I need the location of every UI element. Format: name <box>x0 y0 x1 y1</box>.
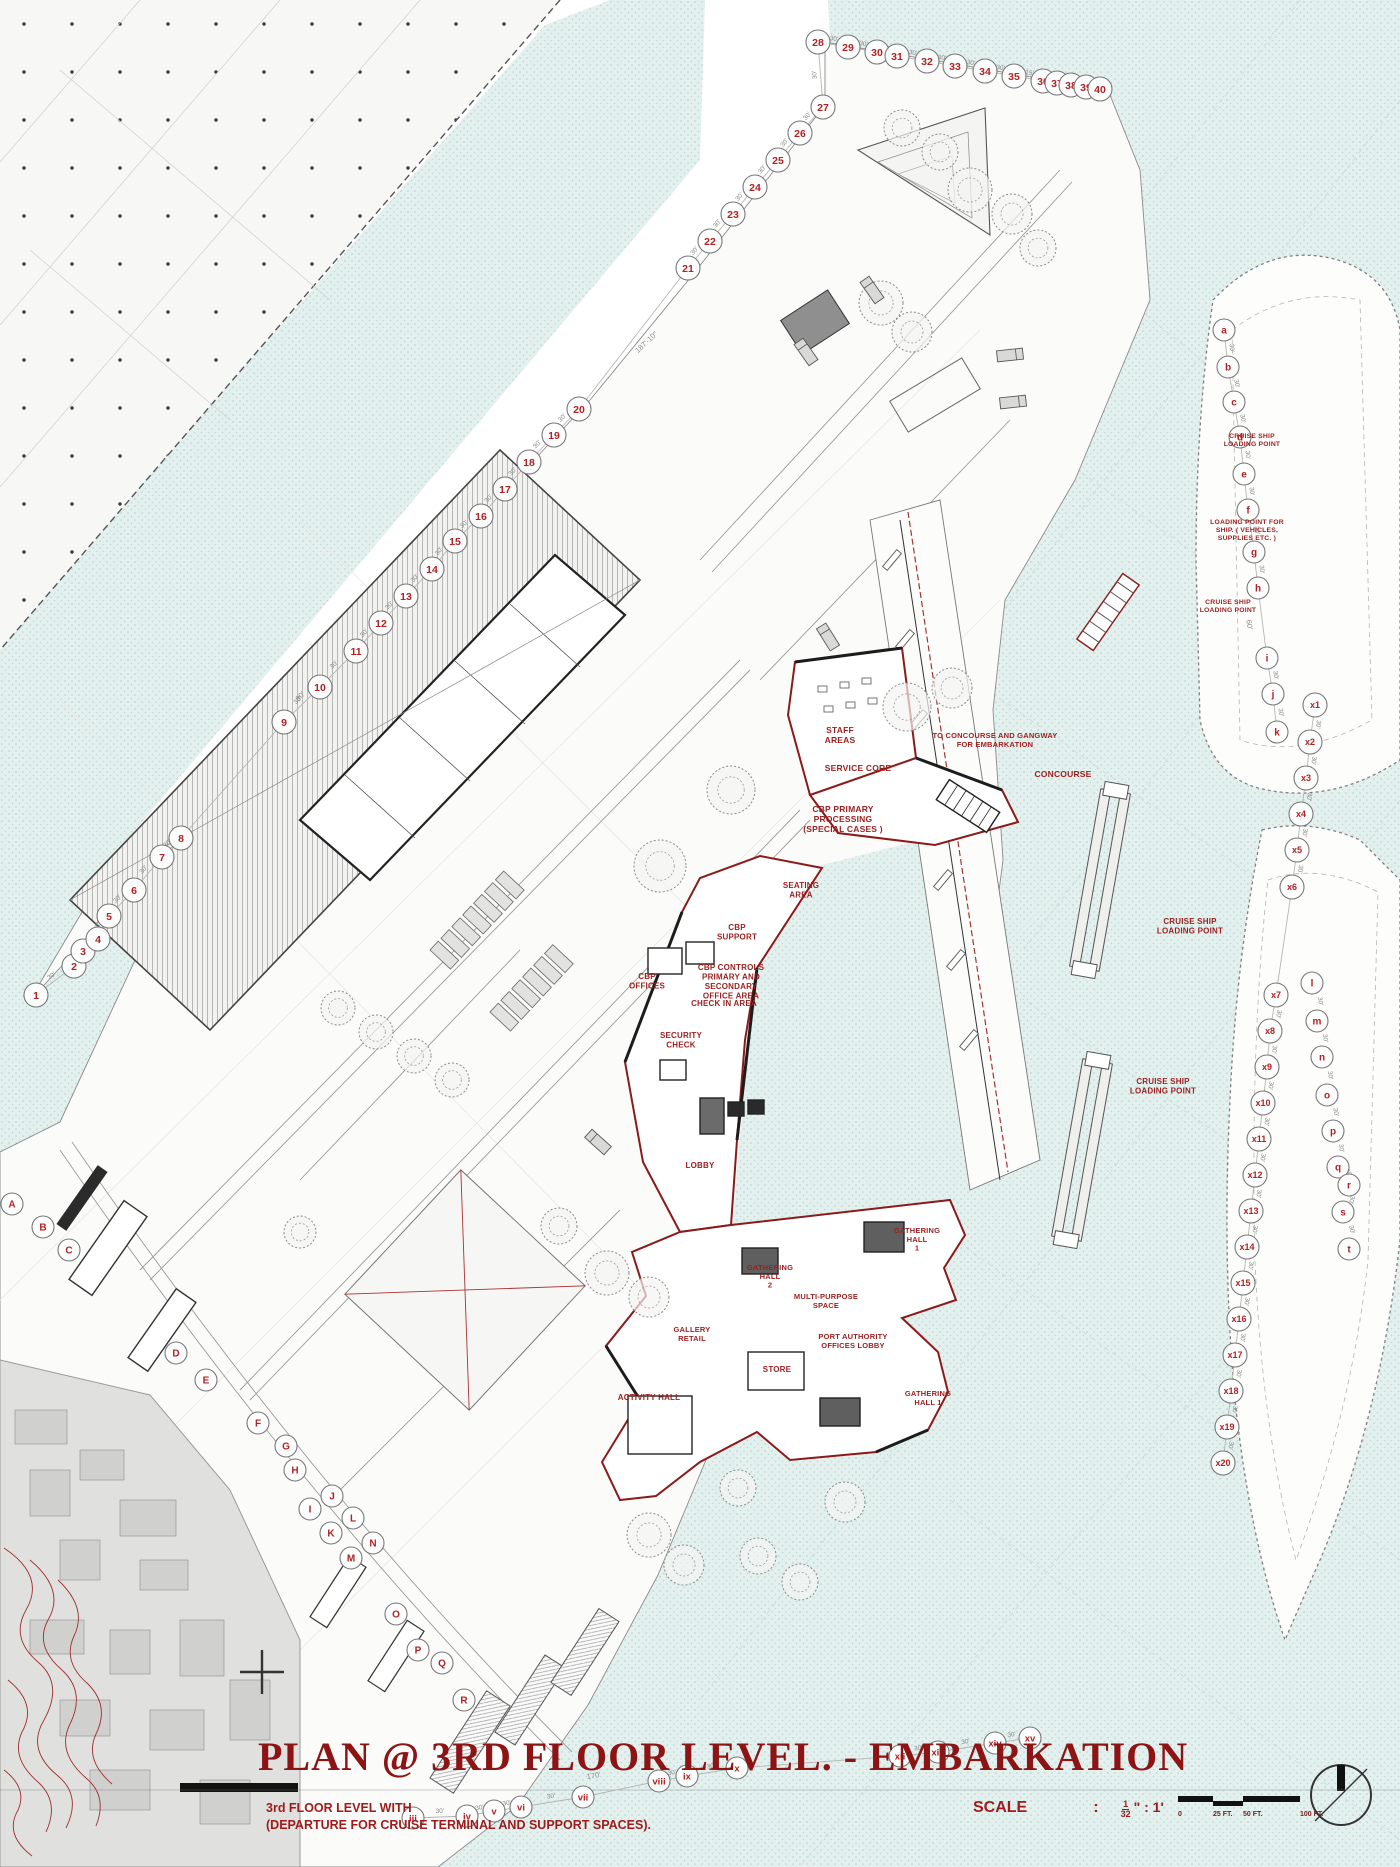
tree-icon <box>321 991 355 1025</box>
tree-icon <box>825 1482 865 1522</box>
tree-icon <box>782 1564 818 1600</box>
svg-text:c: c <box>1231 398 1237 409</box>
grid-dimension: 30' <box>1243 1297 1251 1306</box>
svg-text:28: 28 <box>812 37 824 49</box>
grid-dimension: 30' <box>1251 1225 1259 1234</box>
grid-dimension: 30' <box>1271 670 1279 680</box>
grid-marker-1: 1 <box>24 983 48 1007</box>
grid-marker-x9: x9 <box>1255 1055 1279 1079</box>
svg-text:x1: x1 <box>1310 700 1320 710</box>
svg-text:15: 15 <box>449 536 461 548</box>
svg-text:1: 1 <box>33 990 39 1002</box>
svg-text:R: R <box>460 1696 468 1707</box>
plan-label-staff: STAFFAREAS <box>825 725 856 745</box>
tree-icon <box>883 683 931 731</box>
svg-text:M: M <box>347 1554 355 1565</box>
svg-text:x20: x20 <box>1215 1458 1230 1468</box>
grid-marker-21: 21 <box>676 256 700 280</box>
svg-text:r: r <box>1347 1181 1351 1192</box>
svg-text:29: 29 <box>842 42 854 54</box>
scale-tick-label: 25 FT. <box>1213 1811 1233 1818</box>
grid-marker-x6: x6 <box>1280 875 1304 899</box>
plan-label-lobby: LOBBY <box>686 1161 715 1170</box>
legend-bar <box>180 1783 298 1792</box>
grid-marker-P: P <box>407 1639 429 1661</box>
svg-text:x15: x15 <box>1235 1278 1250 1288</box>
grid-marker-k: k <box>1266 721 1288 743</box>
grid-marker-24: 24 <box>743 175 767 199</box>
grid-marker-x17: x17 <box>1223 1343 1247 1367</box>
plan-label-cruise-ship: CRUISE SHIPLOADING POINT <box>1130 1077 1196 1095</box>
svg-text:O: O <box>392 1610 400 1621</box>
svg-text:x19: x19 <box>1219 1422 1234 1432</box>
tree-icon <box>884 110 920 146</box>
grid-marker-s: s <box>1332 1201 1354 1223</box>
svg-text:20: 20 <box>573 404 585 416</box>
svg-text:i: i <box>1266 654 1269 665</box>
svg-text:24: 24 <box>749 182 761 194</box>
grid-marker-13: 13 <box>394 584 418 608</box>
grid-marker-x2: x2 <box>1298 730 1322 754</box>
grid-marker-x20: x20 <box>1211 1451 1235 1475</box>
grid-dimension: 30' <box>1305 792 1313 801</box>
grid-marker-x18: x18 <box>1219 1379 1243 1403</box>
plan-label-cruise-ship: CRUISE SHIPLOADING POINT <box>1157 917 1223 935</box>
svg-text:x7: x7 <box>1271 990 1281 1000</box>
grid-marker-f: f <box>1237 499 1259 521</box>
svg-text:26: 26 <box>794 128 806 140</box>
grid-dimension: 30' <box>1321 1034 1329 1043</box>
svg-text:C: C <box>65 1246 72 1257</box>
svg-text:g: g <box>1251 548 1257 559</box>
svg-text:K: K <box>327 1529 335 1540</box>
truck-icon <box>999 395 1026 409</box>
svg-text:8: 8 <box>178 833 184 845</box>
grid-dimension: 30' <box>1248 487 1256 496</box>
grid-marker-p: p <box>1322 1120 1344 1142</box>
grid-marker-8: 8 <box>169 826 193 850</box>
grid-marker-e: e <box>1233 463 1255 485</box>
grid-dimension: 30' <box>1238 414 1246 424</box>
grid-dimension: 30' <box>1247 1261 1255 1270</box>
grid-marker-a: a <box>1213 319 1235 341</box>
svg-text:18: 18 <box>523 457 535 469</box>
svg-text:F: F <box>255 1419 261 1430</box>
grid-marker-L: L <box>342 1507 364 1529</box>
grid-marker-x16: x16 <box>1227 1307 1251 1331</box>
svg-text:x10: x10 <box>1255 1098 1270 1108</box>
grid-dimension: 30' <box>1274 1009 1282 1019</box>
tree-icon <box>435 1063 469 1097</box>
dimension-label: 60' <box>1244 619 1254 630</box>
grid-marker-16: 16 <box>469 504 493 528</box>
svg-text:h: h <box>1255 584 1261 595</box>
grid-marker-25: 25 <box>766 148 790 172</box>
grid-marker-j: j <box>1262 683 1284 705</box>
grid-marker-x19: x19 <box>1215 1415 1239 1439</box>
grid-marker-g: g <box>1243 541 1265 563</box>
grid-dimension: 30' <box>1331 1107 1339 1117</box>
tree-icon <box>1020 230 1056 266</box>
grid-marker-F: F <box>247 1412 269 1434</box>
svg-text:J: J <box>329 1492 335 1503</box>
grid-marker-10: 10 <box>308 675 332 699</box>
grid-marker-A: A <box>1 1193 23 1215</box>
grid-marker-32: 32 <box>915 49 939 73</box>
grid-marker-22: 22 <box>698 229 722 253</box>
svg-text:x12: x12 <box>1247 1170 1262 1180</box>
svg-text:x8: x8 <box>1265 1026 1275 1036</box>
svg-text:13: 13 <box>400 591 412 603</box>
grid-marker-18: 18 <box>517 450 541 474</box>
grid-marker-m: m <box>1306 1010 1328 1032</box>
grid-dimension: 30' <box>1314 720 1322 729</box>
plan-label-cbp-controls: CBP CONTROLSPRIMARY ANDSECONDARYOFFICE A… <box>698 963 765 1000</box>
plan-label-store: STORE <box>763 1365 792 1374</box>
svg-text:31: 31 <box>891 51 903 63</box>
svg-text:6: 6 <box>131 885 137 897</box>
grid-marker-x12: x12 <box>1243 1163 1267 1187</box>
scale-colon: : <box>1093 1799 1098 1817</box>
svg-text:x17: x17 <box>1227 1350 1242 1360</box>
svg-text:2: 2 <box>71 961 77 973</box>
grid-dimension: 30' <box>1277 708 1285 717</box>
svg-text:q: q <box>1335 1163 1341 1174</box>
svg-text:x3: x3 <box>1301 773 1311 783</box>
svg-text:10: 10 <box>314 682 326 694</box>
svg-text:11: 11 <box>350 646 361 658</box>
tree-icon <box>932 668 972 708</box>
grid-marker-E: E <box>195 1369 217 1391</box>
grid-marker-x5: x5 <box>1285 838 1309 862</box>
grid-dimension: 30' <box>1258 565 1266 574</box>
grid-dimension: 30' <box>1301 828 1309 837</box>
grid-dimension: 30' <box>1326 1071 1334 1080</box>
grid-marker-Q: Q <box>431 1652 453 1674</box>
svg-text:33: 33 <box>949 61 961 73</box>
tree-icon <box>720 1470 756 1506</box>
svg-text:4: 4 <box>95 934 101 946</box>
grid-marker-H: H <box>284 1459 306 1481</box>
svg-text:9: 9 <box>281 717 287 729</box>
grid-marker-x10: x10 <box>1251 1091 1275 1115</box>
svg-text:32: 32 <box>921 56 933 68</box>
svg-text:x4: x4 <box>1296 809 1306 819</box>
svg-text:16: 16 <box>475 511 487 523</box>
svg-text:22: 22 <box>704 236 716 248</box>
plan-subtitle: 3rd FLOOR LEVEL WITH (DEPARTURE FOR CRUI… <box>266 1800 651 1834</box>
svg-text:x9: x9 <box>1262 1062 1272 1072</box>
tree-icon <box>707 766 755 814</box>
plan-label-cbp-primary: CBP PRIMARYPROCESSING(SPECIAL CASES ) <box>803 804 883 834</box>
plan-label-activity-hall: ACTIVITY HALL <box>618 1393 680 1402</box>
svg-text:A: A <box>8 1200 15 1211</box>
svg-text:x14: x14 <box>1239 1242 1254 1252</box>
grid-marker-l: l <box>1301 972 1323 994</box>
svg-text:j: j <box>1271 690 1275 701</box>
plan-label-port-authority: PORT AUTHORITYOFFICES LOBBY <box>818 1332 887 1350</box>
grid-marker-x7: x7 <box>1264 983 1288 1007</box>
grid-marker-28: 28 <box>806 30 830 54</box>
svg-text:D: D <box>172 1349 179 1360</box>
grid-marker-5: 5 <box>97 904 121 928</box>
tree-icon <box>634 840 686 892</box>
tree-icon <box>992 194 1032 234</box>
grid-marker-27: 27 <box>811 95 835 119</box>
grid-marker-20: 20 <box>567 397 591 421</box>
svg-text:m: m <box>1313 1017 1322 1028</box>
tree-icon <box>627 1513 671 1557</box>
svg-text:x11: x11 <box>1252 1134 1267 1144</box>
svg-text:x16: x16 <box>1231 1314 1246 1324</box>
grid-dimension: 30' <box>1244 450 1252 459</box>
plan-label-service-core: SERVICE CORE <box>825 763 892 773</box>
grid-dimension: 30' <box>1227 1441 1235 1450</box>
svg-text:p: p <box>1330 1127 1336 1138</box>
svg-text:19: 19 <box>548 430 560 442</box>
grid-marker-b: b <box>1217 356 1239 378</box>
grid-marker-x8: x8 <box>1258 1019 1282 1043</box>
svg-text:21: 21 <box>682 263 694 275</box>
grid-marker-34: 34 <box>973 59 997 83</box>
grid-dimension: 30' <box>1259 1153 1267 1162</box>
svg-text:E: E <box>203 1376 210 1387</box>
scale-tick-label: 0 <box>1178 1811 1182 1818</box>
scale-suffix: " : 1' <box>1134 1799 1164 1815</box>
subtitle-line-1: 3rd FLOOR LEVEL WITH <box>266 1800 651 1817</box>
grid-marker-o: o <box>1316 1084 1338 1106</box>
grid-marker-x11: x11 <box>1247 1127 1271 1151</box>
svg-text:12: 12 <box>375 618 387 630</box>
scale-label: SCALE <box>973 1799 1027 1817</box>
grid-marker-C: C <box>58 1239 80 1261</box>
grid-marker-7: 7 <box>150 845 174 869</box>
grid-dimension: 30' <box>1255 1189 1263 1198</box>
grid-marker-14: 14 <box>420 557 444 581</box>
grid-marker-40: 40 <box>1088 77 1112 101</box>
svg-text:I: I <box>309 1505 312 1516</box>
grid-dimension: 30' <box>1270 1045 1278 1054</box>
plan-label-check-in-area: CHECK IN AREA <box>691 999 757 1008</box>
grid-marker-n: n <box>1311 1046 1333 1068</box>
svg-text:7: 7 <box>159 852 165 864</box>
subtitle-line-2: (DEPARTURE FOR CRUISE TERMINAL AND SUPPO… <box>266 1817 651 1834</box>
tree-icon <box>397 1039 431 1073</box>
grid-marker-x15: x15 <box>1231 1271 1255 1295</box>
grid-marker-19: 19 <box>542 423 566 447</box>
site-plan-drawing: 30'30'30'30'30'30'30'30'30'30'30'30'30'3… <box>0 0 1400 1867</box>
plan-label-cruise-ship: CRUISE SHIPLOADING POINT <box>1200 599 1257 614</box>
grid-marker-c: c <box>1223 391 1245 413</box>
svg-text:30: 30 <box>871 47 883 59</box>
grid-marker-17: 17 <box>493 477 517 501</box>
tree-icon <box>585 1251 629 1295</box>
scale-note: SCALE : 1 32 " : 1' <box>973 1799 1164 1820</box>
svg-text:35: 35 <box>1008 71 1020 83</box>
grid-dimension: 30' <box>1228 343 1236 352</box>
svg-text:e: e <box>1241 470 1247 481</box>
grid-marker-33: 33 <box>943 54 967 78</box>
tree-icon <box>740 1538 776 1574</box>
tree-icon <box>629 1277 669 1317</box>
svg-text:x6: x6 <box>1287 882 1297 892</box>
grid-marker-G: G <box>275 1435 297 1457</box>
grid-marker-26: 26 <box>788 121 812 145</box>
tree-icon <box>359 1015 393 1049</box>
truck-icon <box>996 348 1023 362</box>
grid-marker-4: 4 <box>86 927 110 951</box>
grid-marker-M: M <box>340 1547 362 1569</box>
grid-dimension: 30' <box>811 70 819 79</box>
tree-icon <box>892 312 932 352</box>
drawing-sheet: 30'30'30'30'30'30'30'30'30'30'30'30'30'3… <box>0 0 1400 1867</box>
svg-text:b: b <box>1225 363 1231 374</box>
svg-text:P: P <box>415 1646 422 1657</box>
grid-dimension: 30' <box>1239 1333 1247 1342</box>
svg-text:x13: x13 <box>1243 1206 1258 1216</box>
grid-marker-h: h <box>1247 577 1269 599</box>
svg-text:x18: x18 <box>1223 1386 1238 1396</box>
scale-tick-label: 50 FT. <box>1243 1811 1263 1818</box>
scale-tick-label: 100 FT. <box>1300 1811 1323 1818</box>
grid-marker-x13: x13 <box>1239 1199 1263 1223</box>
grid-marker-J: J <box>321 1485 343 1507</box>
svg-text:l: l <box>1311 979 1314 990</box>
svg-text:27: 27 <box>817 102 829 114</box>
grid-dimension: 30' <box>1235 1369 1243 1378</box>
grid-marker-x3: x3 <box>1294 766 1318 790</box>
grid-dimension: 30' <box>1310 756 1318 765</box>
grid-marker-x1: x1 <box>1303 693 1327 717</box>
grid-marker-9: 9 <box>272 710 296 734</box>
grid-dimension: 30' <box>1296 865 1304 874</box>
plan-label-cruise-ship: CRUISE SHIPLOADING POINT <box>1224 433 1281 448</box>
grid-marker-I: I <box>299 1498 321 1520</box>
svg-text:34: 34 <box>979 66 991 78</box>
grid-marker-15: 15 <box>443 529 467 553</box>
svg-text:o: o <box>1324 1091 1330 1102</box>
svg-text:14: 14 <box>426 564 438 576</box>
grid-dimension: 30' <box>1232 379 1240 389</box>
tree-icon <box>922 134 958 170</box>
grid-marker-N: N <box>362 1532 384 1554</box>
grid-marker-6: 6 <box>122 878 146 902</box>
page-title: PLAN @ 3RD FLOOR LEVEL. - EMBARKATION <box>258 1733 1188 1780</box>
svg-text:N: N <box>369 1539 376 1550</box>
svg-text:3: 3 <box>80 946 86 958</box>
grid-marker-K: K <box>320 1522 342 1544</box>
svg-text:17: 17 <box>499 484 511 496</box>
grid-marker-B: B <box>32 1216 54 1238</box>
svg-text:a: a <box>1221 326 1227 337</box>
grid-marker-x14: x14 <box>1235 1235 1259 1259</box>
tree-icon <box>948 168 992 212</box>
plan-label-concourse: CONCOURSE <box>1034 769 1091 779</box>
svg-text:H: H <box>291 1466 298 1477</box>
svg-text:5: 5 <box>106 911 112 923</box>
svg-text:Q: Q <box>438 1659 446 1670</box>
tree-icon <box>541 1208 577 1244</box>
grid-dimension: 30' <box>1337 1144 1345 1153</box>
svg-text:G: G <box>282 1442 290 1453</box>
grid-marker-D: D <box>165 1342 187 1364</box>
grid-marker-35: 35 <box>1002 64 1026 88</box>
tree-icon <box>284 1216 316 1248</box>
grid-dimension: 30' <box>1347 1225 1355 1234</box>
grid-marker-x4: x4 <box>1289 802 1313 826</box>
tree-icon <box>664 1545 704 1585</box>
grid-marker-R: R <box>453 1689 475 1711</box>
grid-marker-i: i <box>1256 647 1278 669</box>
svg-text:23: 23 <box>727 209 739 221</box>
grid-dimension: 30' <box>1267 1081 1275 1090</box>
svg-text:x2: x2 <box>1305 737 1315 747</box>
plan-label-gallery: GALLERYRETAIL <box>674 1325 711 1343</box>
plan-label-loading-point-for: LOADING POINT FORSHIP. ( VEHICLES,SUPPLI… <box>1210 519 1284 542</box>
grid-marker-O: O <box>385 1603 407 1625</box>
scale-fraction: 1 32 <box>1121 1800 1131 1820</box>
svg-text:x5: x5 <box>1292 845 1302 855</box>
grid-marker-11: 11 <box>344 639 368 663</box>
grid-marker-r: r <box>1338 1174 1360 1196</box>
grid-dimension: 30' <box>1316 997 1324 1006</box>
svg-text:n: n <box>1319 1053 1325 1064</box>
svg-text:25: 25 <box>772 155 784 167</box>
svg-text:s: s <box>1340 1208 1346 1219</box>
grid-dimension: 30' <box>1263 1117 1271 1126</box>
grid-marker-31: 31 <box>885 44 909 68</box>
svg-text:L: L <box>350 1514 356 1525</box>
grid-dimension: 30' <box>1231 1405 1239 1414</box>
svg-text:40: 40 <box>1094 84 1106 96</box>
grid-marker-t: t <box>1338 1238 1360 1260</box>
grid-marker-23: 23 <box>721 202 745 226</box>
grid-marker-12: 12 <box>369 611 393 635</box>
svg-text:B: B <box>39 1223 46 1234</box>
grid-marker-29: 29 <box>836 35 860 59</box>
svg-text:k: k <box>1274 728 1280 739</box>
